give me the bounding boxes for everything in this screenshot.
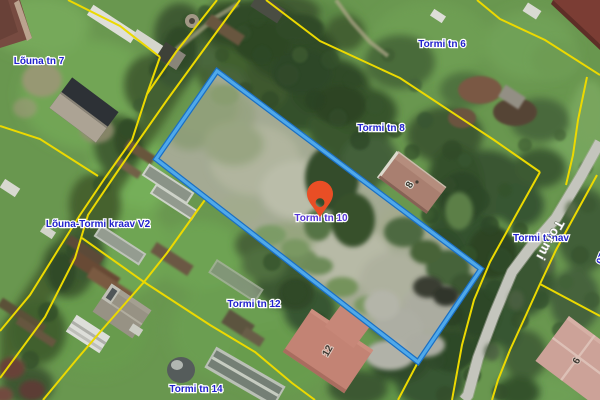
svg-text:Tormi tn 12: Tormi tn 12 bbox=[227, 299, 281, 310]
svg-text:Tormi tn 14: Tormi tn 14 bbox=[169, 384, 223, 395]
svg-text:Lõuna tn 7: Lõuna tn 7 bbox=[14, 56, 65, 67]
svg-text:Tormi tn 6: Tormi tn 6 bbox=[418, 39, 466, 50]
svg-text:Lõuna-Tormi kraav V2: Lõuna-Tormi kraav V2 bbox=[46, 219, 151, 230]
svg-text:Tormi tn 8: Tormi tn 8 bbox=[357, 123, 405, 134]
